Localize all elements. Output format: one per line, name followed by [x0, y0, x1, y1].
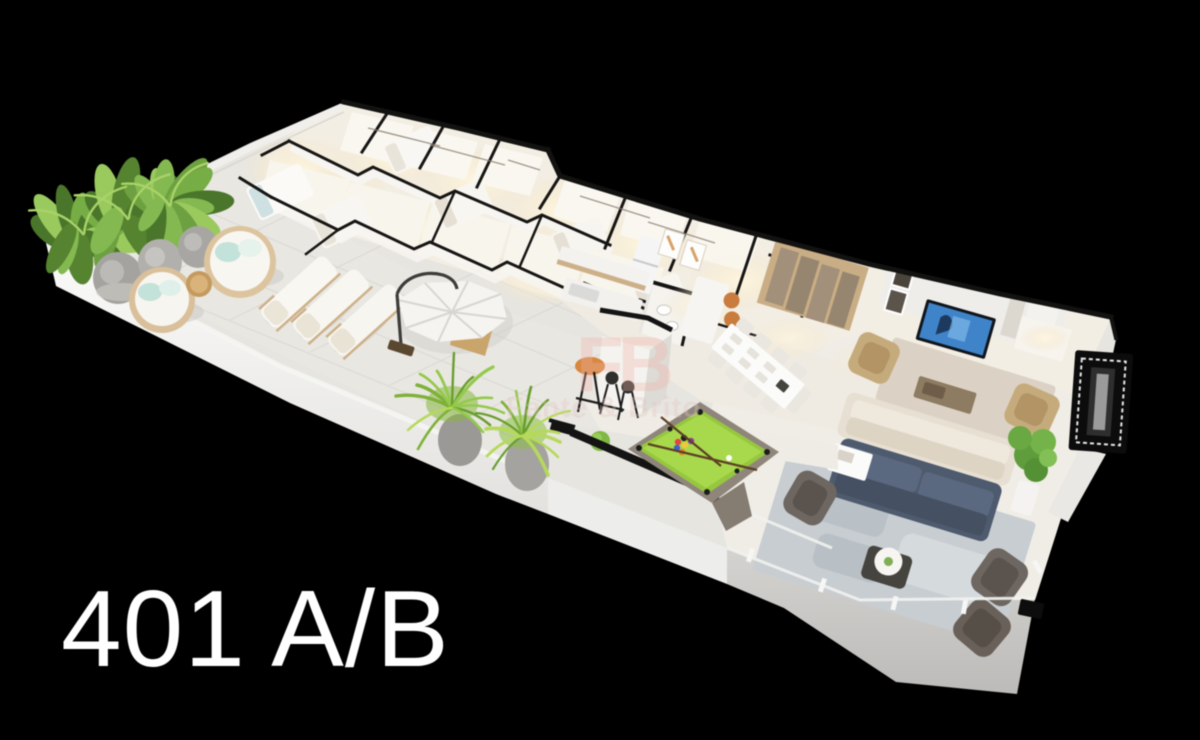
svg-text:401 A/B: 401 A/B [61, 568, 450, 690]
svg-text:Fante & Brito: Fante & Brito [506, 392, 701, 424]
